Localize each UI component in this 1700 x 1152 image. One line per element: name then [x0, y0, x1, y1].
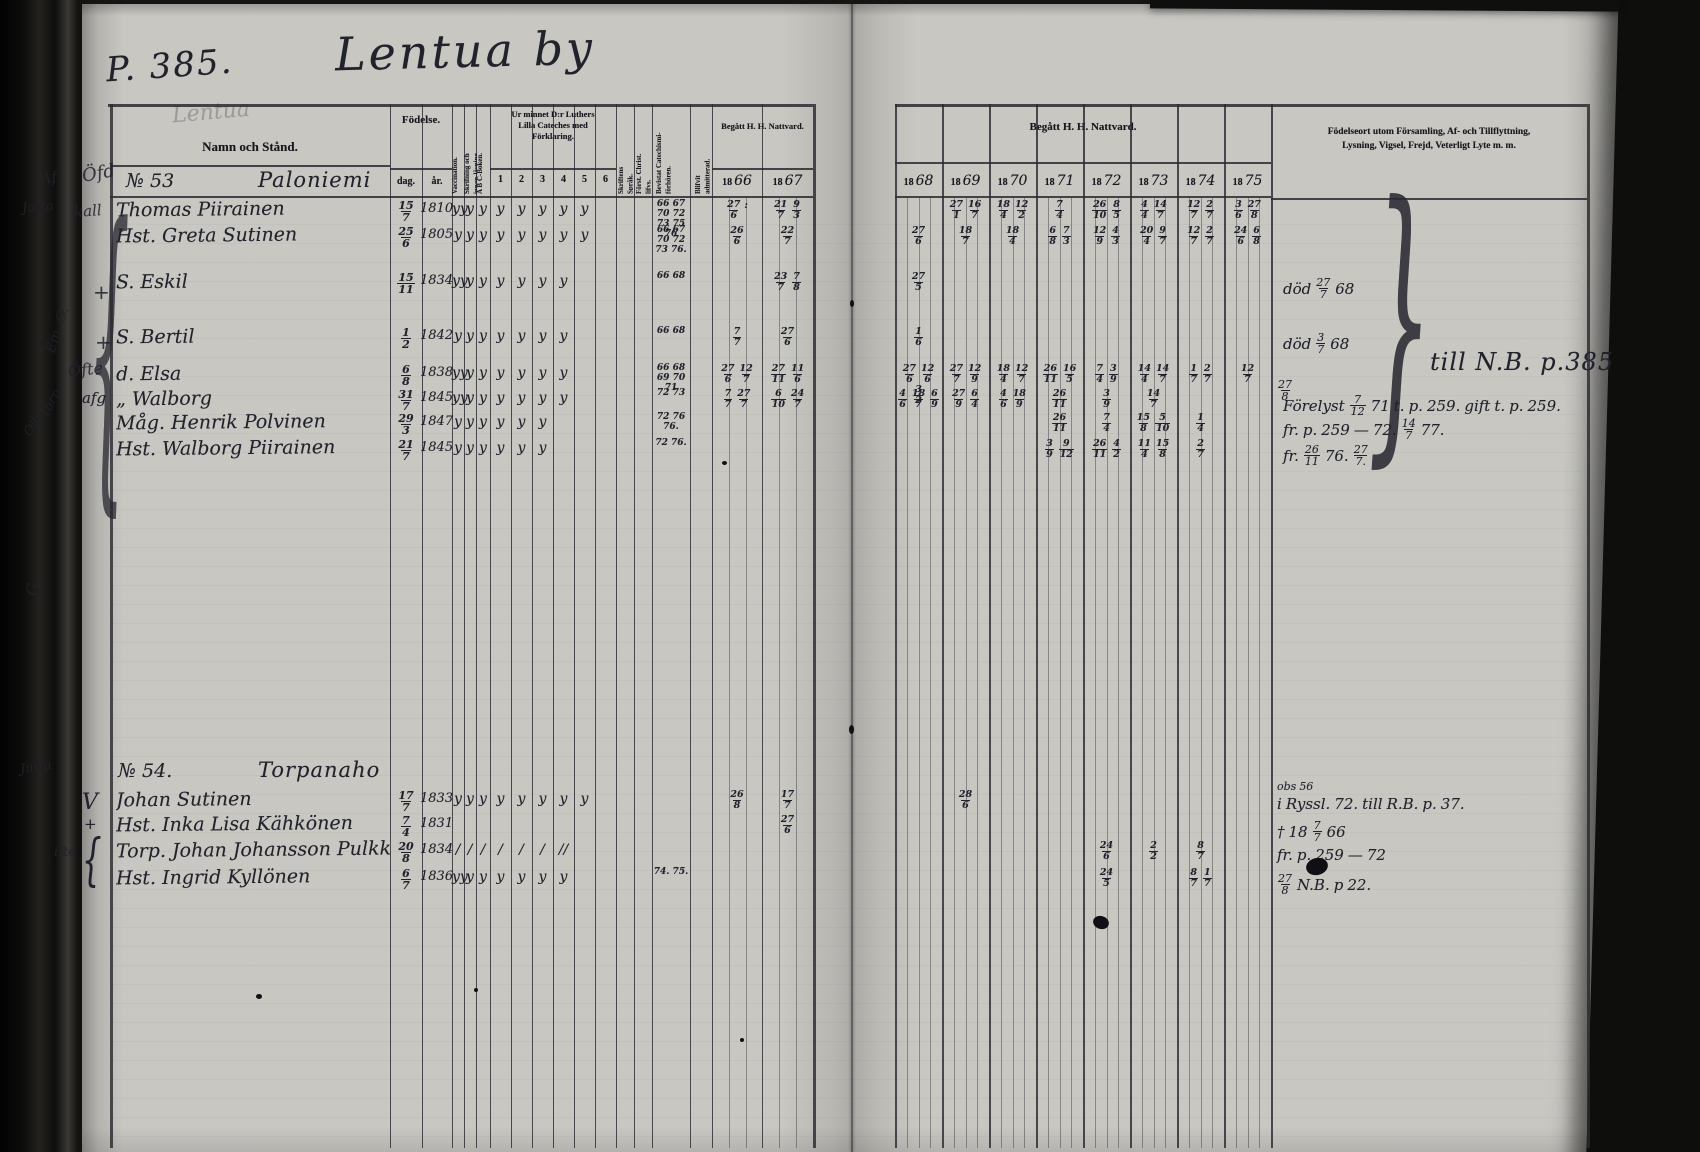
- reading-check-mark: y: [553, 390, 574, 406]
- table-rule-v: [1001, 198, 1002, 1148]
- communion-marks-1870: 184122: [990, 200, 1035, 220]
- table-rule-h: [110, 165, 390, 167]
- communion-marks-1873: 144147: [1131, 364, 1176, 384]
- communion-marks-1866: 77: [712, 327, 762, 347]
- center-fold-crease: [851, 0, 853, 1152]
- person-name: Johan Sutinen: [116, 787, 390, 812]
- header-catechism-number: 6: [595, 174, 616, 185]
- birth-day: 317: [390, 389, 422, 412]
- table-rule-v: [652, 104, 653, 1148]
- table-rule-v: [942, 104, 944, 1148]
- document-scan: P. 385. Lentua by Lentua Namn och Stånd.…: [0, 0, 1700, 1152]
- margin-mark: V: [82, 790, 98, 815]
- table-rule-v: [690, 104, 691, 1148]
- header-year: 1868: [895, 172, 942, 190]
- margin-note: G: [22, 581, 43, 597]
- header-year: 1875: [1224, 172, 1271, 190]
- communion-marks-1867: 610247: [762, 389, 813, 409]
- table-rule-v: [634, 104, 635, 1148]
- communion-marks-1869: 271167: [943, 200, 988, 220]
- reading-check-mark: y: [476, 328, 490, 344]
- communion-marks-1868: 276: [896, 226, 941, 246]
- reading-check-mark: y: [532, 869, 553, 885]
- reading-check-mark: y: [511, 390, 532, 406]
- communion-marks-1874: 1727: [1178, 364, 1223, 384]
- row-note: †187766: [1277, 820, 1346, 843]
- communion-marks-1868: 4618769: [896, 389, 941, 409]
- reading-check-mark: y: [476, 273, 490, 289]
- communion-marks-1869: 27964: [943, 389, 988, 409]
- table-rule-v: [1201, 198, 1202, 1148]
- header-year: 1871: [1036, 172, 1083, 190]
- table-rule-v: [989, 104, 991, 1148]
- margin-note: +: [93, 280, 110, 304]
- reading-check-mark: y: [574, 227, 595, 243]
- table-rule-v: [1248, 198, 1249, 1148]
- row-note: fr.p.259—72.14777.: [1283, 418, 1445, 441]
- reading-check-mark: /: [511, 842, 532, 858]
- birth-day: 177: [390, 790, 422, 813]
- communion-marks-1875: 24668: [1225, 226, 1270, 246]
- header-vertical-col: Blifvit admitterad.: [694, 106, 710, 194]
- communion-marks-1866: 266: [712, 226, 762, 246]
- reading-check-mark: y: [476, 869, 490, 885]
- table-rule-v: [1024, 198, 1025, 1148]
- reading-check-mark: y: [511, 791, 532, 807]
- header-catechism-number: 1: [490, 174, 511, 185]
- table-rule-v: [1095, 198, 1096, 1148]
- margin-mark: afg: [82, 389, 106, 407]
- header-name-col: Namn och Stånd.: [110, 139, 390, 155]
- margin-note: Em. O.: [43, 305, 73, 355]
- table-rule-v: [1259, 198, 1260, 1148]
- table-rule-v: [1165, 198, 1166, 1148]
- birth-day: 68: [390, 364, 422, 387]
- row-note: Förelyst71271t.p.259.giftt.p.259.: [1283, 394, 1561, 417]
- family-number: № 53: [126, 170, 174, 192]
- reading-check-mark: y: [464, 390, 476, 406]
- communion-marks-1870: 184127: [990, 364, 1035, 384]
- table-rule-h: [895, 162, 1271, 164]
- table-rule-v: [490, 104, 491, 1148]
- ink-blot: [740, 1038, 744, 1042]
- communion-marks-1873: 114158: [1131, 439, 1176, 459]
- reading-check-mark: y: [532, 390, 553, 406]
- table-rule-v: [1212, 198, 1213, 1148]
- reading-check-mark: yy: [452, 390, 464, 406]
- reading-check-mark: y: [553, 328, 574, 344]
- communion-marks-1869: 187: [943, 226, 988, 246]
- reading-check-mark: y: [511, 365, 532, 381]
- communion-marks-1867: 227: [762, 226, 813, 246]
- table-rule-v: [977, 198, 978, 1148]
- reading-check-mark: y: [464, 227, 476, 243]
- margin-note: Torp: [37, 387, 64, 421]
- birth-year: 1842: [420, 328, 452, 343]
- reading-check-mark: yy: [452, 201, 464, 217]
- table-rule-v: [1587, 104, 1590, 1148]
- reading-check-mark: y: [476, 227, 490, 243]
- reading-check-mark: y: [553, 365, 574, 381]
- table-rule-v: [1048, 198, 1049, 1148]
- birth-day: 74: [390, 815, 422, 838]
- reading-check-mark: y: [553, 869, 574, 885]
- margin-note: Jutta: [21, 199, 54, 217]
- header-notes-line1: Födelseort utom Församling, Af- och Till…: [1271, 127, 1587, 137]
- reading-check-mark: y: [490, 365, 511, 381]
- catechism-exam-years: 74. 75.: [652, 867, 690, 877]
- reading-check-mark: y: [490, 201, 511, 217]
- communion-marks-1871: 74: [1037, 200, 1082, 220]
- table-rule-v: [1224, 104, 1226, 1148]
- birth-year: 1847: [420, 414, 452, 429]
- reading-check-mark: y: [464, 869, 476, 885]
- header-year: 1867: [762, 172, 813, 190]
- table-rule-v: [452, 104, 453, 1148]
- reading-check-mark: y: [476, 440, 490, 456]
- birth-year: 1834: [420, 273, 452, 288]
- table-rule-v: [1189, 198, 1190, 1148]
- person-name: „ Walborg: [116, 386, 390, 411]
- reading-check-mark: y: [476, 365, 490, 381]
- table-rule-v: [966, 198, 967, 1148]
- birth-day: 217: [390, 439, 422, 462]
- table-rule-v: [532, 104, 533, 1148]
- communion-marks-1872: 7439: [1084, 364, 1129, 384]
- reading-check-mark: y: [452, 328, 464, 344]
- communion-marks-1873: 20497: [1131, 226, 1176, 246]
- communion-marks-1874: 87: [1178, 841, 1223, 861]
- birth-day: 67: [390, 868, 422, 891]
- header-vertical-col: Skrifning och innan-läsning.: [463, 106, 477, 194]
- communion-marks-1866: 77277: [712, 389, 762, 409]
- person-name: Hst. Greta Sutinen: [116, 223, 390, 248]
- table-rule-h: [490, 168, 616, 170]
- birth-day: 1511: [390, 272, 422, 295]
- header-year: 1874: [1177, 172, 1224, 190]
- communion-marks-1874: 12727: [1178, 226, 1223, 246]
- header-catechism-number: 2: [511, 174, 532, 185]
- reading-check-mark: y: [574, 791, 595, 807]
- communion-marks-1867: 23778: [762, 272, 813, 292]
- communion-marks-1870: 184: [990, 226, 1035, 246]
- ink-blot: [256, 994, 262, 999]
- reading-check-mark: yy: [452, 365, 464, 381]
- communion-marks-1873: 147: [1131, 389, 1176, 409]
- communion-marks-1867: 177: [762, 790, 813, 810]
- family-farm-name: Paloniemi: [258, 168, 371, 192]
- birth-day: 293: [390, 413, 422, 436]
- reading-check-mark: y: [490, 869, 511, 885]
- family-number: № 54.: [118, 760, 172, 782]
- table-rule-v: [813, 104, 816, 1148]
- reading-check-mark: y: [532, 791, 553, 807]
- reading-check-mark: /: [452, 842, 464, 858]
- reading-check-mark: y: [464, 365, 476, 381]
- birth-day: 256: [390, 226, 422, 249]
- margin-note: Af: [39, 167, 59, 188]
- person-name: Måg. Henrik Polvinen: [116, 410, 390, 435]
- row-note: fr.261176.277.: [1283, 444, 1369, 467]
- reading-check-mark: y: [464, 273, 476, 289]
- ink-blot: [474, 988, 478, 992]
- header-year: 1870: [989, 172, 1036, 190]
- birth-year: 1845.: [420, 390, 452, 405]
- table-rule-v: [895, 104, 897, 1148]
- reading-check-mark: y: [476, 791, 490, 807]
- table-rule-v: [595, 104, 596, 1148]
- table-rule-v: [954, 198, 955, 1148]
- communion-marks-1868: 275: [896, 272, 941, 292]
- header-catechism-number: 5: [574, 174, 595, 185]
- birth-day: 157: [390, 200, 422, 223]
- table-rule-v: [1271, 104, 1273, 1148]
- table-rule-h: [390, 168, 452, 170]
- table-rule-v: [511, 104, 512, 1148]
- reading-check-mark: y: [532, 440, 553, 456]
- reading-check-mark: y: [532, 273, 553, 289]
- reading-check-mark: y: [511, 201, 532, 217]
- reading-check-mark: y: [452, 414, 464, 430]
- communion-marks-1874: 27: [1178, 439, 1223, 459]
- row-note: fr.p.259—72: [1277, 846, 1386, 864]
- row-note: 278N.B.p22.: [1277, 873, 1371, 896]
- communion-marks-1871: 2611: [1037, 389, 1082, 409]
- communion-marks-1873: 22: [1131, 841, 1176, 861]
- margin-note: Öfte: [67, 358, 104, 381]
- reading-check-mark: //: [553, 842, 574, 858]
- reading-check-mark: y: [464, 440, 476, 456]
- person-name: Torp. Johan Johansson Pulkkinen: [116, 838, 390, 863]
- margin-brace: {: [82, 833, 102, 889]
- reading-check-mark: /: [532, 842, 553, 858]
- catechism-exam-years: 72 73: [652, 388, 690, 398]
- header-vertical-col: Skriftens Språk.: [617, 106, 633, 194]
- communion-marks-1872: 245: [1084, 868, 1129, 888]
- margin-note: +: [95, 330, 112, 354]
- birth-year: 1833: [420, 791, 452, 806]
- reading-check-mark: y: [476, 414, 490, 430]
- table-rule-v: [1118, 198, 1119, 1148]
- communion-marks-1871: 2611165: [1037, 364, 1082, 384]
- reading-check-mark: y: [532, 365, 553, 381]
- table-rule-v: [1130, 104, 1132, 1148]
- communion-marks-1870: 46189: [990, 389, 1035, 409]
- communion-marks-1871: 39912: [1037, 439, 1082, 459]
- row-note: död27768: [1283, 277, 1354, 300]
- table-rule-v: [422, 104, 423, 1148]
- reading-check-mark: y: [464, 414, 476, 430]
- reading-check-mark: y: [553, 791, 574, 807]
- table-rule-v: [553, 104, 554, 1148]
- table-rule-v: [1236, 198, 1237, 1148]
- table-rule-v: [390, 104, 391, 1148]
- ledger-ruling: [110, 206, 1580, 1146]
- communion-marks-1872: 39: [1084, 389, 1129, 409]
- communion-marks-1874: 8717: [1178, 868, 1223, 888]
- header-year: 1869: [942, 172, 989, 190]
- table-rule-v: [1060, 198, 1061, 1148]
- reading-check-mark: y: [532, 414, 553, 430]
- reading-check-mark: y: [452, 440, 464, 456]
- communion-marks-1866: 276127: [712, 364, 762, 384]
- table-rule-v: [110, 104, 113, 1148]
- reading-check-mark: y: [511, 869, 532, 885]
- reading-check-mark: y: [476, 201, 490, 217]
- birth-year: 1838: [420, 365, 452, 380]
- reading-check-mark: yy: [452, 273, 464, 289]
- header-catechism-number: 3: [532, 174, 553, 185]
- ink-blot: [850, 300, 854, 307]
- communion-marks-1872: 261142: [1084, 439, 1129, 459]
- header-birth-year: år.: [422, 176, 452, 187]
- reading-check-mark: y: [464, 201, 476, 217]
- reading-check-mark: y: [464, 328, 476, 344]
- catechism-exam-years: 66 68: [652, 326, 690, 336]
- communion-marks-1869: 277129: [943, 364, 988, 384]
- reading-check-mark: y: [511, 414, 532, 430]
- reading-check-mark: y: [511, 440, 532, 456]
- birth-year: 1834: [420, 842, 452, 857]
- birth-day: 208: [390, 841, 422, 864]
- reading-check-mark: y: [490, 440, 511, 456]
- reading-check-mark: /: [464, 842, 476, 858]
- communion-marks-1875: 36278: [1225, 200, 1270, 220]
- catechism-exam-years: 72 76.: [652, 438, 690, 448]
- header-year: 1872: [1083, 172, 1130, 190]
- communion-marks-1869: 286: [943, 790, 988, 810]
- table-rule-v: [762, 104, 763, 1148]
- margin-note: kall: [73, 201, 102, 221]
- table-rule-h: [110, 196, 813, 198]
- table-rule-v: [1177, 104, 1179, 1148]
- communion-marks-1872: 246: [1084, 841, 1129, 861]
- reading-check-mark: y: [574, 201, 595, 217]
- catechism-exam-years: 66 68: [652, 271, 690, 281]
- header-birth: Födelse.: [390, 114, 452, 126]
- family-farm-name: Torpanaho: [258, 758, 380, 782]
- communion-marks-1866: 268: [712, 790, 762, 810]
- header-year: 1866: [712, 172, 762, 190]
- birth-day: 12: [390, 327, 422, 350]
- person-name: S. Eskil: [116, 269, 390, 294]
- person-name: Thomas Piirainen: [116, 197, 390, 222]
- communion-marks-1874: 14: [1178, 413, 1223, 433]
- reading-check-mark: y: [553, 273, 574, 289]
- reading-check-mark: y: [464, 791, 476, 807]
- table-rule-v: [1071, 198, 1072, 1148]
- reading-check-mark: yy: [452, 869, 464, 885]
- communion-marks-1872: 74: [1084, 413, 1129, 433]
- person-name: Hst. Walborg Piirainen: [116, 436, 390, 461]
- table-rule-v: [1083, 104, 1085, 1148]
- reading-check-mark: y: [532, 227, 553, 243]
- person-name: Hst. Ingrid Kyllönen: [116, 865, 390, 890]
- margin-note: Jutta: [19, 758, 53, 777]
- birth-year: 1805: [420, 227, 452, 242]
- table-rule-v: [1036, 104, 1038, 1148]
- reading-check-mark: y: [511, 273, 532, 289]
- reading-check-mark: y: [476, 390, 490, 406]
- communion-marks-1874: 12727: [1178, 200, 1223, 220]
- communion-marks-1868: 16: [896, 327, 941, 347]
- header-year: 1873: [1130, 172, 1177, 190]
- reading-check-mark: /: [490, 842, 511, 858]
- reading-check-mark: y: [490, 390, 511, 406]
- table-rule-v: [1142, 198, 1143, 1148]
- table-rule-h: [895, 196, 1271, 198]
- header-birth-day: dag.: [390, 176, 422, 187]
- communion-marks-1873: 44147: [1131, 200, 1176, 220]
- catechism-exam-years: 72 76 76.: [652, 412, 690, 432]
- communion-marks-1867: 276: [762, 327, 813, 347]
- communion-marks-1867: 21793: [762, 200, 813, 220]
- reading-check-mark: y: [490, 791, 511, 807]
- table-rule-v: [574, 104, 575, 1148]
- ink-blot: [849, 725, 854, 734]
- header-vertical-col: Bevistat Catechismi- förhören.: [655, 106, 689, 194]
- header-catechism-number: 4: [553, 174, 574, 185]
- ink-blot: [722, 461, 727, 465]
- table-rule-v: [616, 104, 617, 1148]
- row-note-small: obs56: [1277, 780, 1313, 793]
- reading-check-mark: y: [490, 273, 511, 289]
- person-name: S. Bertil: [116, 324, 390, 349]
- reading-check-mark: y: [452, 227, 464, 243]
- birth-year: 1831: [420, 816, 452, 831]
- table-rule-h: [895, 104, 1587, 107]
- reading-check-mark: y: [490, 414, 511, 430]
- birth-year: 1845: [420, 440, 452, 455]
- communion-marks-1871: 6873: [1037, 226, 1082, 246]
- margin-mark: ifte: [54, 845, 76, 860]
- person-name: Hst. Inka Lisa Kähkönen: [116, 812, 390, 837]
- table-rule-v: [712, 104, 713, 1148]
- table-rule-v: [1013, 198, 1014, 1148]
- reading-check-mark: y: [511, 227, 532, 243]
- communion-marks-1867: 276: [762, 815, 813, 835]
- communion-marks-1872: 261085: [1084, 200, 1129, 220]
- communion-marks-1875: 127: [1225, 364, 1270, 384]
- row-note: död3768: [1283, 332, 1349, 355]
- catechism-exam-years: 66 67 70 72 73 76.: [652, 225, 690, 255]
- reading-check-mark: y: [490, 227, 511, 243]
- table-rule-h: [1271, 198, 1587, 200]
- table-rule-v: [1154, 198, 1155, 1148]
- reading-check-mark: y: [532, 328, 553, 344]
- birth-year: 1836: [420, 869, 452, 884]
- communion-marks-1866: 276:: [712, 200, 762, 220]
- communion-marks-1873: 158510: [1131, 413, 1176, 433]
- person-name: d. Elsa: [116, 361, 390, 386]
- communion-marks-1872: 12943: [1084, 226, 1129, 246]
- header-vertical-col: Först. Christ. lifvs.: [635, 106, 651, 194]
- reading-check-mark: y: [452, 791, 464, 807]
- reading-check-mark: y: [553, 227, 574, 243]
- table-rule-v: [1107, 198, 1108, 1148]
- communion-marks-1867: 2711116: [762, 364, 813, 384]
- reading-check-mark: y: [553, 201, 574, 217]
- header-vertical-col: A B C-Boken.: [476, 106, 490, 194]
- reading-check-mark: y: [511, 328, 532, 344]
- reading-check-mark: y: [532, 201, 553, 217]
- birth-year: 1810.: [420, 201, 452, 216]
- table-rule-h: [712, 168, 813, 170]
- village-title: Lentua by: [334, 21, 595, 82]
- table-rule-v: [464, 104, 465, 1148]
- reading-check-mark: /: [476, 842, 490, 858]
- reading-check-mark: y: [490, 328, 511, 344]
